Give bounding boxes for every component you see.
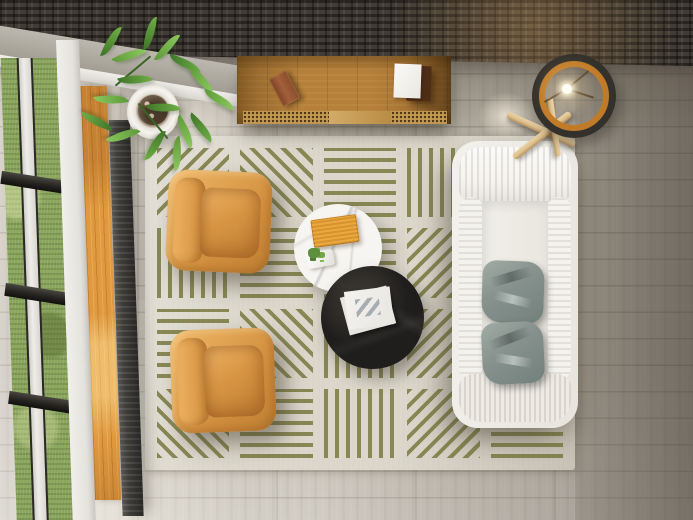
sofa-pillow-upper [481,260,545,324]
armchair-seat [204,345,265,418]
sofa-arm-left [459,197,483,380]
cane-panel-right [391,111,447,124]
black-coffee-table [321,266,424,369]
brown-book [269,70,300,106]
magazine [344,286,394,329]
sofa-arm-right [547,197,571,380]
orange-tray [310,214,359,248]
lamp-shade-ring [532,54,616,138]
sofa-pillow-lower [480,320,545,385]
white-booklet [393,64,421,99]
armchair-bottom [169,327,277,434]
mini-plant [308,248,320,258]
sofa [452,141,578,428]
door-panel-middle [329,111,391,124]
armchair-seat [199,187,261,259]
armchair-top [165,169,273,274]
cane-panel-left [243,111,329,124]
sideboard [237,56,451,124]
lamp-bulb [562,84,572,94]
living-room-scene [0,0,693,520]
rug-tile [324,389,396,458]
